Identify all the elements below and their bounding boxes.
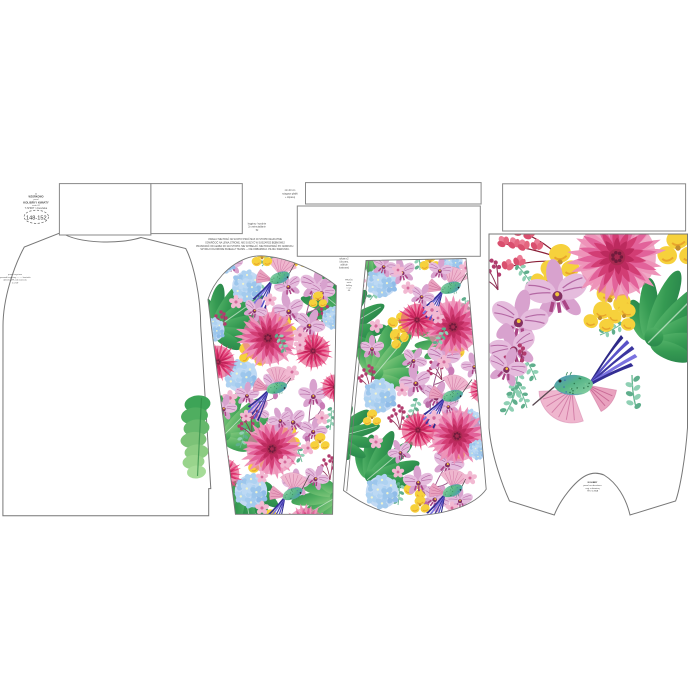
svg-text:ODWRÓCIĆ NA LEWĄ STRONĘ. NIE S: ODWRÓCIĆ NA LEWĄ STRONĘ. NIE SUSZYĆ W SU… [205,242,285,245]
svg-text:przed szyciem: przed szyciem [8,273,22,276]
svg-text:PRZÓD: PRZÓD [345,278,353,281]
svg-text:legginsy / spodnie: legginsy / spodnie [248,223,267,225]
svg-text:sciągacz gładki: sciągacz gładki [282,193,298,195]
svg-text:szyj z dzianiną: szyj z dzianiną [585,488,600,490]
svg-text:T-SHIRT / dresówka: T-SHIRT / dresówka [25,207,48,210]
svg-text:lustrzane): lustrzane) [339,266,349,269]
svg-text:PRASOWAĆ OD LEWEJ DO 110 STOPN: PRASOWAĆ OD LEWEJ DO 110 STOPNI. NIE WYB… [196,245,294,248]
svg-text:panel na dresówce: panel na dresówce [583,484,602,487]
svg-text:odbicie: odbicie [340,264,348,266]
svg-text:KOLIBRY I KWIATY: KOLIBRY I KWIATY [23,200,49,204]
svg-text:wzór: wzór [347,281,352,284]
svg-text:sprawdź wymiary — –– kontrola: sprawdź wymiary — –– kontrola [0,276,31,279]
svg-text:min 40 cm: min 40 cm [285,190,296,192]
svg-text:rękaw x2: rękaw x2 [339,258,349,261]
svg-text:kolibry: kolibry [346,284,353,287]
svg-text:KOLIBRY: KOLIBRY [588,482,598,484]
svg-text:SZYWAJ KOLOROWE PANELE Z TKANI: SZYWAJ KOLOROWE PANELE Z TKANIN — NIE OD… [200,248,290,251]
svg-text:1 szt.: 1 szt. [346,287,352,290]
svg-text:(do pary,: (do pary, [340,261,349,264]
svg-text:1 cm/9: 1 cm/9 [12,282,19,284]
svg-text:+ dopasuj: + dopasuj [285,197,296,199]
svg-text:dziecka (PL) do wzrostu: dziecka (PL) do wzrostu [3,279,27,282]
svg-text:2x zwierciadlanie: 2x zwierciadlanie [248,226,266,229]
svg-text:UWAGA! NIE PRAĆ NA SUCHO! PRAĆ: UWAGA! NIE PRAĆ NA SUCHO! PRAĆ MAX 30 ST… [208,238,282,241]
svg-text:148-152: 148-152 [26,215,47,221]
svg-text:TEO & MIA: TEO & MIA [587,490,599,493]
